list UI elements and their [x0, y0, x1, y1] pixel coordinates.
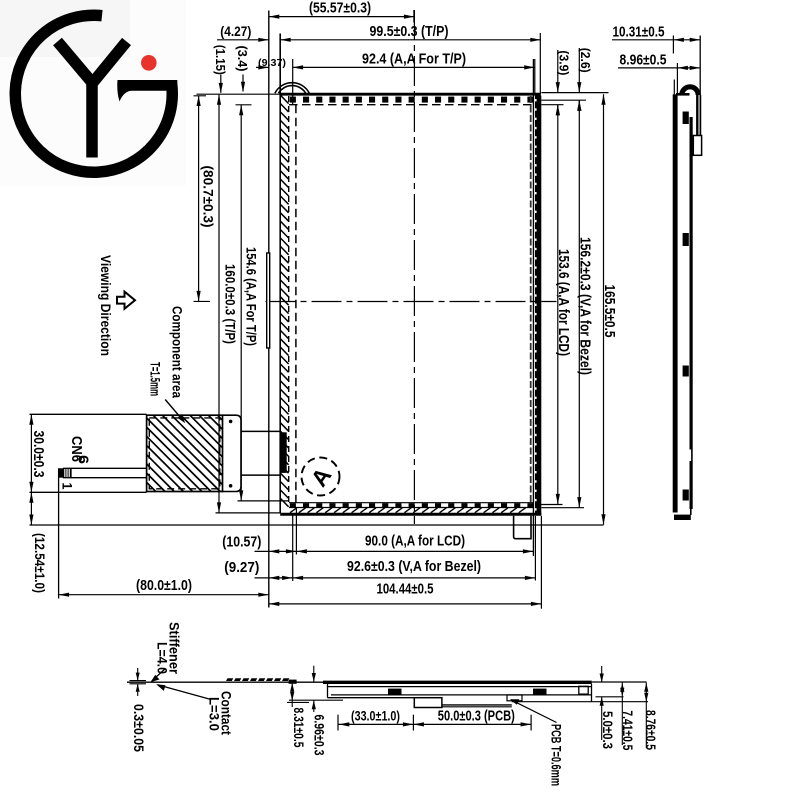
svg-text:(9.27): (9.27): [224, 560, 259, 576]
svg-text:153.6 (A,A for LCD): 153.6 (A,A for LCD): [555, 249, 571, 356]
svg-text:(80.7±0.3): (80.7±0.3): [201, 166, 217, 228]
svg-text:Component area: Component area: [169, 306, 185, 398]
svg-text:92.4 (A,A For T/P): 92.4 (A,A For T/P): [362, 51, 466, 67]
svg-text:T=1.5mm: T=1.5mm: [147, 362, 163, 396]
svg-text:156.2±0.3 (V,A for Bezel): 156.2±0.3 (V,A for Bezel): [577, 237, 593, 375]
svg-text:1: 1: [60, 483, 76, 490]
svg-text:(3.4): (3.4): [235, 45, 249, 71]
svg-text:(2.6): (2.6): [578, 48, 593, 73]
svg-text:(33.0±1.0): (33.0±1.0): [351, 707, 400, 723]
svg-text:L=3.0: L=3.0: [206, 697, 222, 731]
svg-text:10.31±0.5: 10.31±0.5: [613, 24, 665, 40]
svg-text:165.5±0.5: 165.5±0.5: [601, 285, 617, 338]
svg-text:(4.27): (4.27): [220, 23, 251, 39]
svg-text:90.0 (A,A for LCD): 90.0 (A,A for LCD): [365, 533, 465, 549]
svg-text:6.96±0.3: 6.96±0.3: [311, 715, 327, 756]
svg-text:PCB T=0.6mm: PCB T=0.6mm: [549, 724, 565, 786]
svg-text:(55.57±0.3): (55.57±0.3): [309, 1, 371, 17]
svg-text:154.6 (A,A For T/P): 154.6 (A,A For T/P): [244, 247, 260, 346]
svg-text:6: 6: [75, 455, 92, 464]
svg-text:(1.15): (1.15): [213, 45, 227, 75]
svg-text:Viewing Direction: Viewing Direction: [98, 255, 113, 356]
svg-text:92.6±0.3 (V,A for Bezel): 92.6±0.3 (V,A for Bezel): [347, 559, 481, 575]
svg-text:5.0±0.3: 5.0±0.3: [600, 711, 616, 749]
svg-text:160.0±0.3 (T/P): 160.0±0.3 (T/P): [223, 264, 239, 344]
svg-text:(10.57): (10.57): [222, 534, 261, 550]
svg-text:(9.37): (9.37): [258, 57, 286, 69]
svg-text:30.0±0.3: 30.0±0.3: [30, 431, 46, 478]
svg-text:(3.9): (3.9): [556, 50, 571, 75]
svg-text:0.3±0.05: 0.3±0.05: [131, 704, 147, 752]
svg-text:8.31±0.5: 8.31±0.5: [291, 708, 307, 748]
svg-text:(12.54±1.0): (12.54±1.0): [32, 533, 48, 593]
svg-text:8.96±0.5: 8.96±0.5: [620, 53, 667, 69]
svg-text:50.0±0.3 (PCB): 50.0±0.3 (PCB): [438, 708, 515, 724]
svg-text:99.5±0.3 (T/P): 99.5±0.3 (T/P): [370, 24, 449, 40]
svg-text:8.76±0.5: 8.76±0.5: [643, 710, 659, 750]
svg-text:7.41±0.5: 7.41±0.5: [620, 710, 636, 750]
svg-text:(80.0±1.0): (80.0±1.0): [136, 578, 192, 594]
svg-text:L=4.0: L=4.0: [154, 642, 170, 674]
svg-text:104.44±0.5: 104.44±0.5: [377, 582, 434, 598]
